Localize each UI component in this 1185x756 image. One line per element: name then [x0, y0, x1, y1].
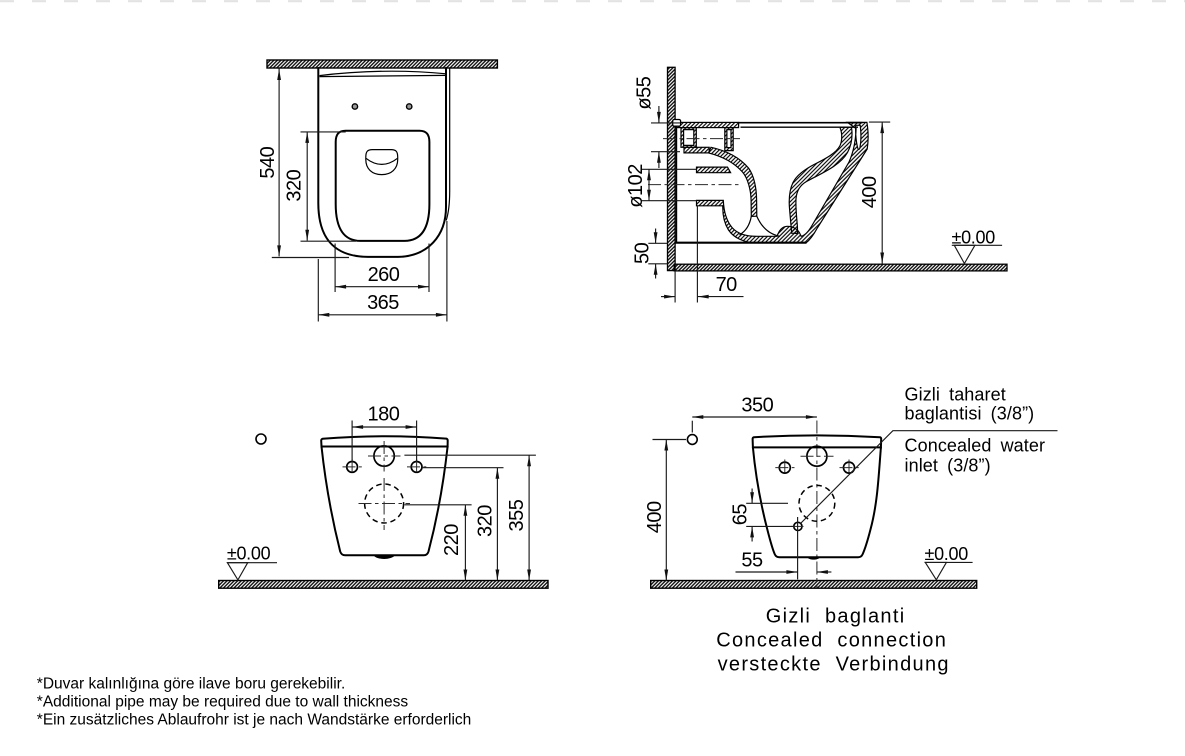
svg-text:*Additional pipe may be requir: *Additional pipe may be required due to …	[37, 694, 409, 711]
svg-text:ø55: ø55	[634, 76, 656, 109]
svg-text:Gizli taharet: Gizli taharet	[905, 385, 1006, 405]
svg-text:Gizli baglanti: Gizli baglanti	[766, 606, 906, 628]
svg-text:400: 400	[859, 176, 881, 208]
svg-text:400: 400	[644, 501, 666, 533]
svg-text:65: 65	[730, 504, 752, 526]
svg-text:*Ein zusätzliches Ablaufrohr i: *Ein zusätzliches Ablaufrohr ist je nach…	[37, 712, 472, 729]
svg-text:180: 180	[367, 404, 399, 426]
svg-text:355: 355	[506, 499, 528, 531]
svg-text:320: 320	[475, 505, 497, 537]
svg-text:540: 540	[257, 146, 279, 178]
svg-text:320: 320	[284, 169, 306, 201]
svg-text:ø102: ø102	[625, 164, 647, 208]
svg-text:365: 365	[367, 292, 399, 314]
svg-text:baglantisi (3/8”): baglantisi (3/8”)	[905, 404, 1035, 424]
svg-text:350: 350	[741, 395, 773, 417]
svg-text:Concealed connection: Concealed connection	[716, 629, 947, 651]
svg-text:versteckte Verbindung: versteckte Verbindung	[718, 654, 950, 676]
svg-text:70: 70	[716, 274, 738, 296]
svg-text:±0.00: ±0.00	[227, 544, 271, 564]
svg-text:*Duvar kalınlığına göre ilave: *Duvar kalınlığına göre ilave boru gerek…	[37, 676, 345, 693]
svg-text:inlet (3/8”): inlet (3/8”)	[905, 456, 991, 476]
svg-text:50: 50	[631, 242, 653, 264]
svg-text:±0.00: ±0.00	[925, 544, 969, 564]
svg-text:55: 55	[741, 550, 763, 572]
svg-text:Concealed water: Concealed water	[905, 436, 1046, 456]
svg-text:±0.00: ±0.00	[952, 228, 996, 248]
svg-text:260: 260	[368, 264, 400, 286]
svg-text:220: 220	[441, 524, 463, 556]
